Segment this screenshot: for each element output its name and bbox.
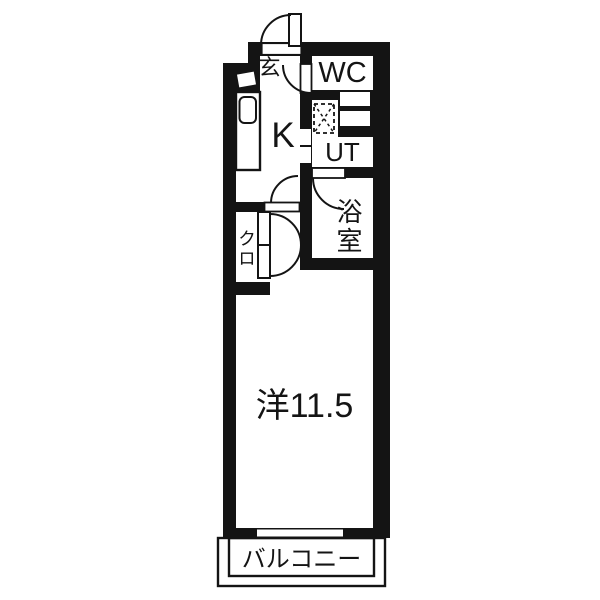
washing-machine-outline [314, 104, 334, 133]
service-shelf-top [340, 92, 370, 106]
kitchen-room-door-swing-arc [271, 176, 298, 203]
room-label-western-room: 洋11.5 [236, 386, 373, 426]
room-label-closet: クロ [233, 221, 255, 277]
room-label-kitchen: K [261, 112, 305, 158]
room-label-utility: UT [312, 137, 373, 167]
kitchen-room-door-leaf [265, 203, 300, 212]
floorplan-drawing [0, 0, 600, 600]
kitchen-room-door [265, 176, 300, 212]
wall-right [373, 42, 390, 538]
bathroom-door-leaf [312, 168, 345, 178]
entrance-door-swing-arc [261, 15, 291, 45]
shoe-cabinet-icon [236, 70, 257, 88]
balcony-window [257, 530, 343, 537]
kitchen-fixtures [236, 70, 260, 170]
wall-closet-bottom [236, 282, 270, 295]
room-label-balcony: バルコニー [231, 546, 372, 573]
wall-left [223, 63, 236, 538]
wc-door [283, 64, 312, 93]
room-label-entrance: 玄 [256, 55, 283, 81]
kitchen-sink-icon [240, 97, 257, 123]
entrance-door-leaf [289, 14, 301, 46]
room-label-wc: WC [312, 56, 373, 90]
washing-machine-icon [314, 104, 334, 133]
service-shelf-bottom [340, 111, 370, 126]
wc-door-leaf [301, 64, 312, 93]
entrance-door [261, 14, 301, 46]
closet-doors [258, 212, 301, 278]
floorplan: 玄 WC K UT 浴室 クロ 洋11.5 バルコニー [0, 0, 600, 600]
room-label-bathroom: 浴室 [331, 192, 361, 262]
closet-door-swing-arc [270, 214, 301, 276]
